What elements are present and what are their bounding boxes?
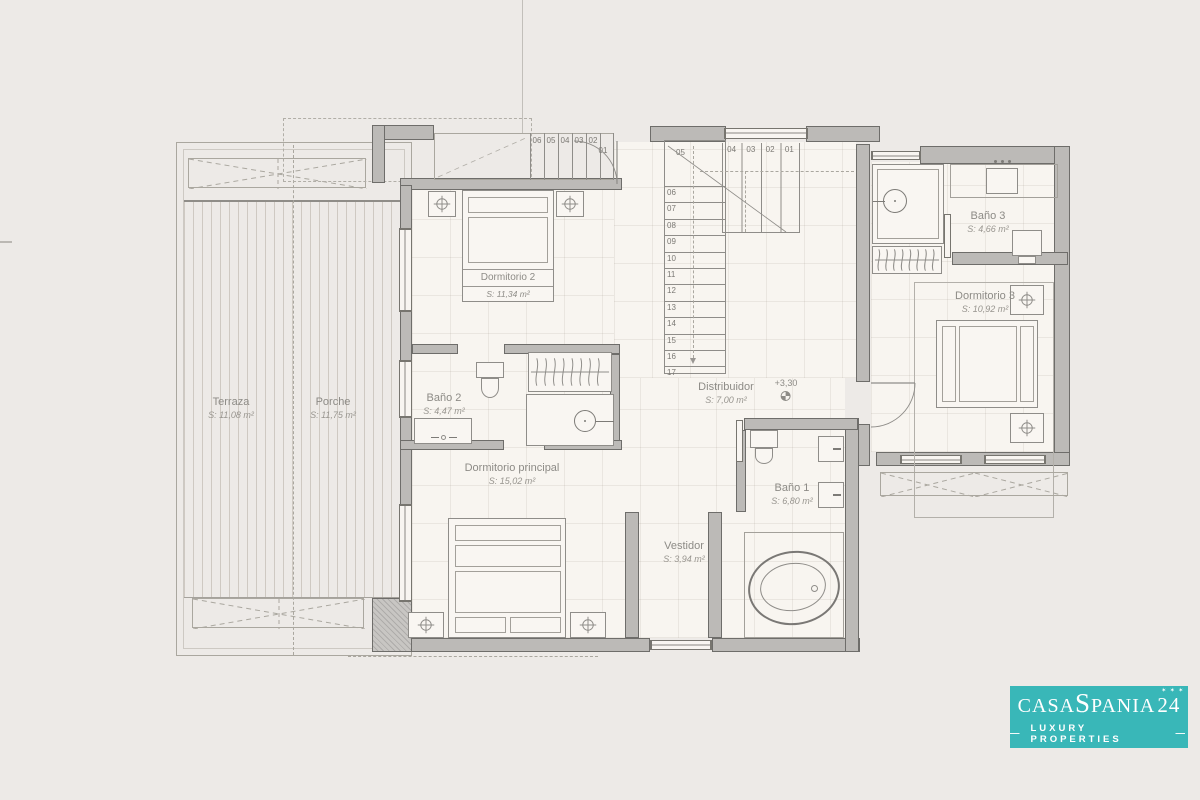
room-name: Dormitorio 3 [955, 290, 1015, 302]
sink [986, 168, 1018, 194]
terrace-porch-divider [293, 145, 294, 655]
faucet-icon [833, 494, 841, 496]
cross-brace-icon [881, 473, 1069, 497]
window [871, 151, 921, 160]
wall-segment [952, 252, 1068, 265]
bed-pillow [1020, 326, 1034, 402]
brand-name: CASASPANIA24✶ ✶ ✶ [1018, 690, 1181, 717]
room-name: Baño 1 [771, 482, 813, 494]
stairwell-void-dashed [745, 171, 746, 232]
lamp-icon [433, 195, 451, 213]
wall-segment [856, 144, 870, 382]
toilet-tank [476, 362, 504, 378]
room-label-dormitorio-principal: Dormitorio principal S: 15,02 m² [465, 462, 560, 486]
room-area: S: 10,92 m² [955, 304, 1015, 314]
stair-tread-number: 15 [664, 334, 726, 350]
closet [872, 246, 942, 274]
bed-blanket [455, 571, 561, 613]
stair-tread-number: 02 [761, 143, 780, 232]
wall-segment [845, 418, 859, 652]
dash-icon: — [1176, 728, 1189, 739]
room-name: Porche [310, 396, 356, 408]
tagline-text: LUXURY PROPERTIES [1031, 723, 1168, 745]
window [399, 504, 412, 602]
stair-tread-number: 06 [530, 133, 544, 180]
bed-blanket [455, 525, 561, 541]
toilet-tank [750, 430, 778, 448]
shower-head-icon [584, 420, 586, 422]
nightstand [408, 612, 444, 638]
room-label-dormitorio3: Dormitorio 3 S: 10,92 m² [955, 290, 1015, 314]
nightstand [556, 191, 584, 217]
wall-segment [625, 512, 639, 638]
lamp-icon [417, 616, 435, 634]
room-name: Baño 2 [423, 392, 465, 404]
wall-segment [806, 126, 880, 142]
lamp-icon [1018, 419, 1036, 437]
section-line [522, 0, 523, 133]
room-name: Dormitorio 2 [463, 269, 553, 287]
bed-blanket [468, 217, 548, 263]
level-marker: +3,30 [775, 378, 798, 407]
logo-tagline: — LUXURY PROPERTIES — [1010, 723, 1188, 745]
toilet-bowl [1018, 256, 1036, 264]
stair-tread-number: 02 [586, 133, 600, 180]
stair-tread-number: 01 [596, 146, 610, 155]
sink-vanity [414, 418, 472, 444]
stars-icon: ✶ ✶ ✶ [1161, 688, 1184, 694]
bed-blanket [455, 545, 561, 567]
bed [448, 518, 566, 638]
wall-segment [412, 344, 458, 354]
brand-number: 24✶ ✶ ✶ [1157, 695, 1180, 716]
stair-tread-number: 07 [664, 202, 726, 218]
stair-tread-number: 05 [544, 133, 558, 180]
faucet-icon [833, 448, 841, 450]
stairwell-void-dashed [700, 171, 854, 172]
stair-flight-treads: 060708091011121314151617 [664, 186, 726, 372]
stair-tread-number: 09 [664, 235, 726, 251]
stair-tread-number: 13 [664, 301, 726, 317]
wall-segment [372, 125, 385, 183]
stair-direction-arrow-icon [690, 358, 696, 364]
level-value: +3,30 [775, 378, 798, 388]
room-area: S: 7,00 m² [698, 395, 754, 405]
nightstand [1010, 285, 1044, 315]
room-name: Dormitorio principal [465, 462, 560, 474]
toilet-bowl [755, 448, 773, 464]
bed-foot [942, 326, 956, 402]
shower-arm [873, 201, 885, 202]
faucet-icon [449, 437, 457, 438]
stair-tread-number: 12 [664, 284, 726, 300]
room-area: S: 4,47 m² [423, 406, 465, 416]
room-name: Baño 3 [967, 210, 1009, 222]
clothes-hangers-icon [529, 353, 611, 391]
room-area: S: 4,66 m² [967, 224, 1009, 234]
stair-tread-number: 01 [780, 143, 799, 232]
level-marker-icon [780, 390, 792, 402]
wall-segment [744, 418, 858, 430]
stair-tread-number: 10 [664, 252, 726, 268]
drain-icon [811, 585, 818, 592]
room-label-vestidor: Vestidor S: 3,94 m² [663, 540, 705, 564]
balcony-strip [880, 472, 1068, 496]
margin-tick [0, 241, 12, 243]
brand-part: CASA [1018, 696, 1075, 716]
stair-tread-number: 06 [664, 186, 726, 202]
room-area: S: 3,94 m² [663, 554, 705, 564]
stair-walkline [693, 146, 694, 358]
room-label-bano2: Baño 2 S: 4,47 m² [423, 392, 465, 416]
room-name: Distribuidor [698, 381, 754, 393]
upper-stair-run: 04030201 [722, 143, 800, 233]
wall-segment [400, 638, 650, 652]
room-label-bano1: Baño 1 S: 6,80 m² [771, 482, 813, 506]
toilet-bowl [481, 378, 499, 398]
stair-tread-number: 14 [664, 317, 726, 333]
wall-segment [708, 512, 722, 638]
sink [818, 482, 844, 508]
faucet-icon [431, 437, 439, 438]
clothes-hangers-icon [873, 247, 941, 273]
stair-tread-number: 03 [572, 133, 586, 180]
brand-number-text: 24 [1157, 693, 1180, 717]
nightstand [570, 612, 606, 638]
wall-segment [712, 638, 860, 652]
closet [528, 352, 612, 392]
overhang-dashed-bottom [348, 656, 598, 657]
bed-blanket [959, 326, 1017, 402]
window [650, 640, 712, 650]
room-area: S: 11,08 m² [208, 410, 254, 420]
sink [818, 436, 844, 462]
shower [872, 164, 944, 244]
toilet-tank [1012, 230, 1042, 256]
stair-tread-number: 11 [664, 268, 726, 284]
door-leaf [944, 214, 951, 258]
lamp-icon [579, 616, 597, 634]
bed-pillow [510, 617, 561, 633]
bed-pillow [468, 197, 548, 213]
room-name: Terraza [208, 396, 254, 408]
room-area: S: 15,02 m² [465, 476, 560, 486]
door-leaf [736, 420, 743, 462]
faucet-icon [994, 160, 1012, 164]
dash-icon: — [1010, 728, 1023, 739]
room-label-distribuidor: Distribuidor S: 7,00 m² [698, 381, 754, 405]
room-label-bano3: Baño 3 S: 4,66 m² [967, 210, 1009, 234]
room-label-terraza: Terraza S: 11,08 m² [208, 396, 254, 420]
lamp-icon [1018, 291, 1036, 309]
window [399, 228, 412, 312]
faucet-icon [441, 435, 446, 440]
bed [936, 320, 1038, 408]
bed: Dormitorio 2 S: 11,34 m² [462, 190, 554, 302]
shower-arm [596, 421, 614, 422]
nightstand [1010, 413, 1044, 443]
casaspania-logo: CASASPANIA24✶ ✶ ✶ — LUXURY PROPERTIES — [1010, 686, 1188, 748]
shower [526, 394, 614, 446]
stair-tread-number: 04 [558, 133, 572, 180]
cross-brace-icon [193, 599, 365, 629]
room-name: Vestidor [663, 540, 705, 552]
pergola-beam-box-bottom [192, 598, 364, 628]
brand-part: S [1075, 690, 1091, 717]
room-area: S: 11,34 m² [463, 286, 553, 304]
wall-pier-hatched [372, 598, 412, 652]
room-area: S: 11,75 m² [310, 410, 356, 420]
room-area: S: 6,80 m² [771, 496, 813, 506]
window [724, 128, 808, 139]
lamp-icon [561, 195, 579, 213]
brand-part: PANIA [1091, 696, 1155, 716]
floor-plan: 01 0605040302 04030201 05 06070809101112… [0, 0, 1200, 800]
window [399, 360, 412, 418]
nightstand [428, 191, 456, 217]
bathtub-platform [744, 532, 844, 638]
entry-stair-run: 01 0605040302 [530, 133, 614, 180]
room-label-porche: Porche S: 11,75 m² [310, 396, 356, 420]
stair-tread-number: 08 [664, 219, 726, 235]
bed-pillow [455, 617, 506, 633]
shower-head-icon [894, 200, 896, 202]
